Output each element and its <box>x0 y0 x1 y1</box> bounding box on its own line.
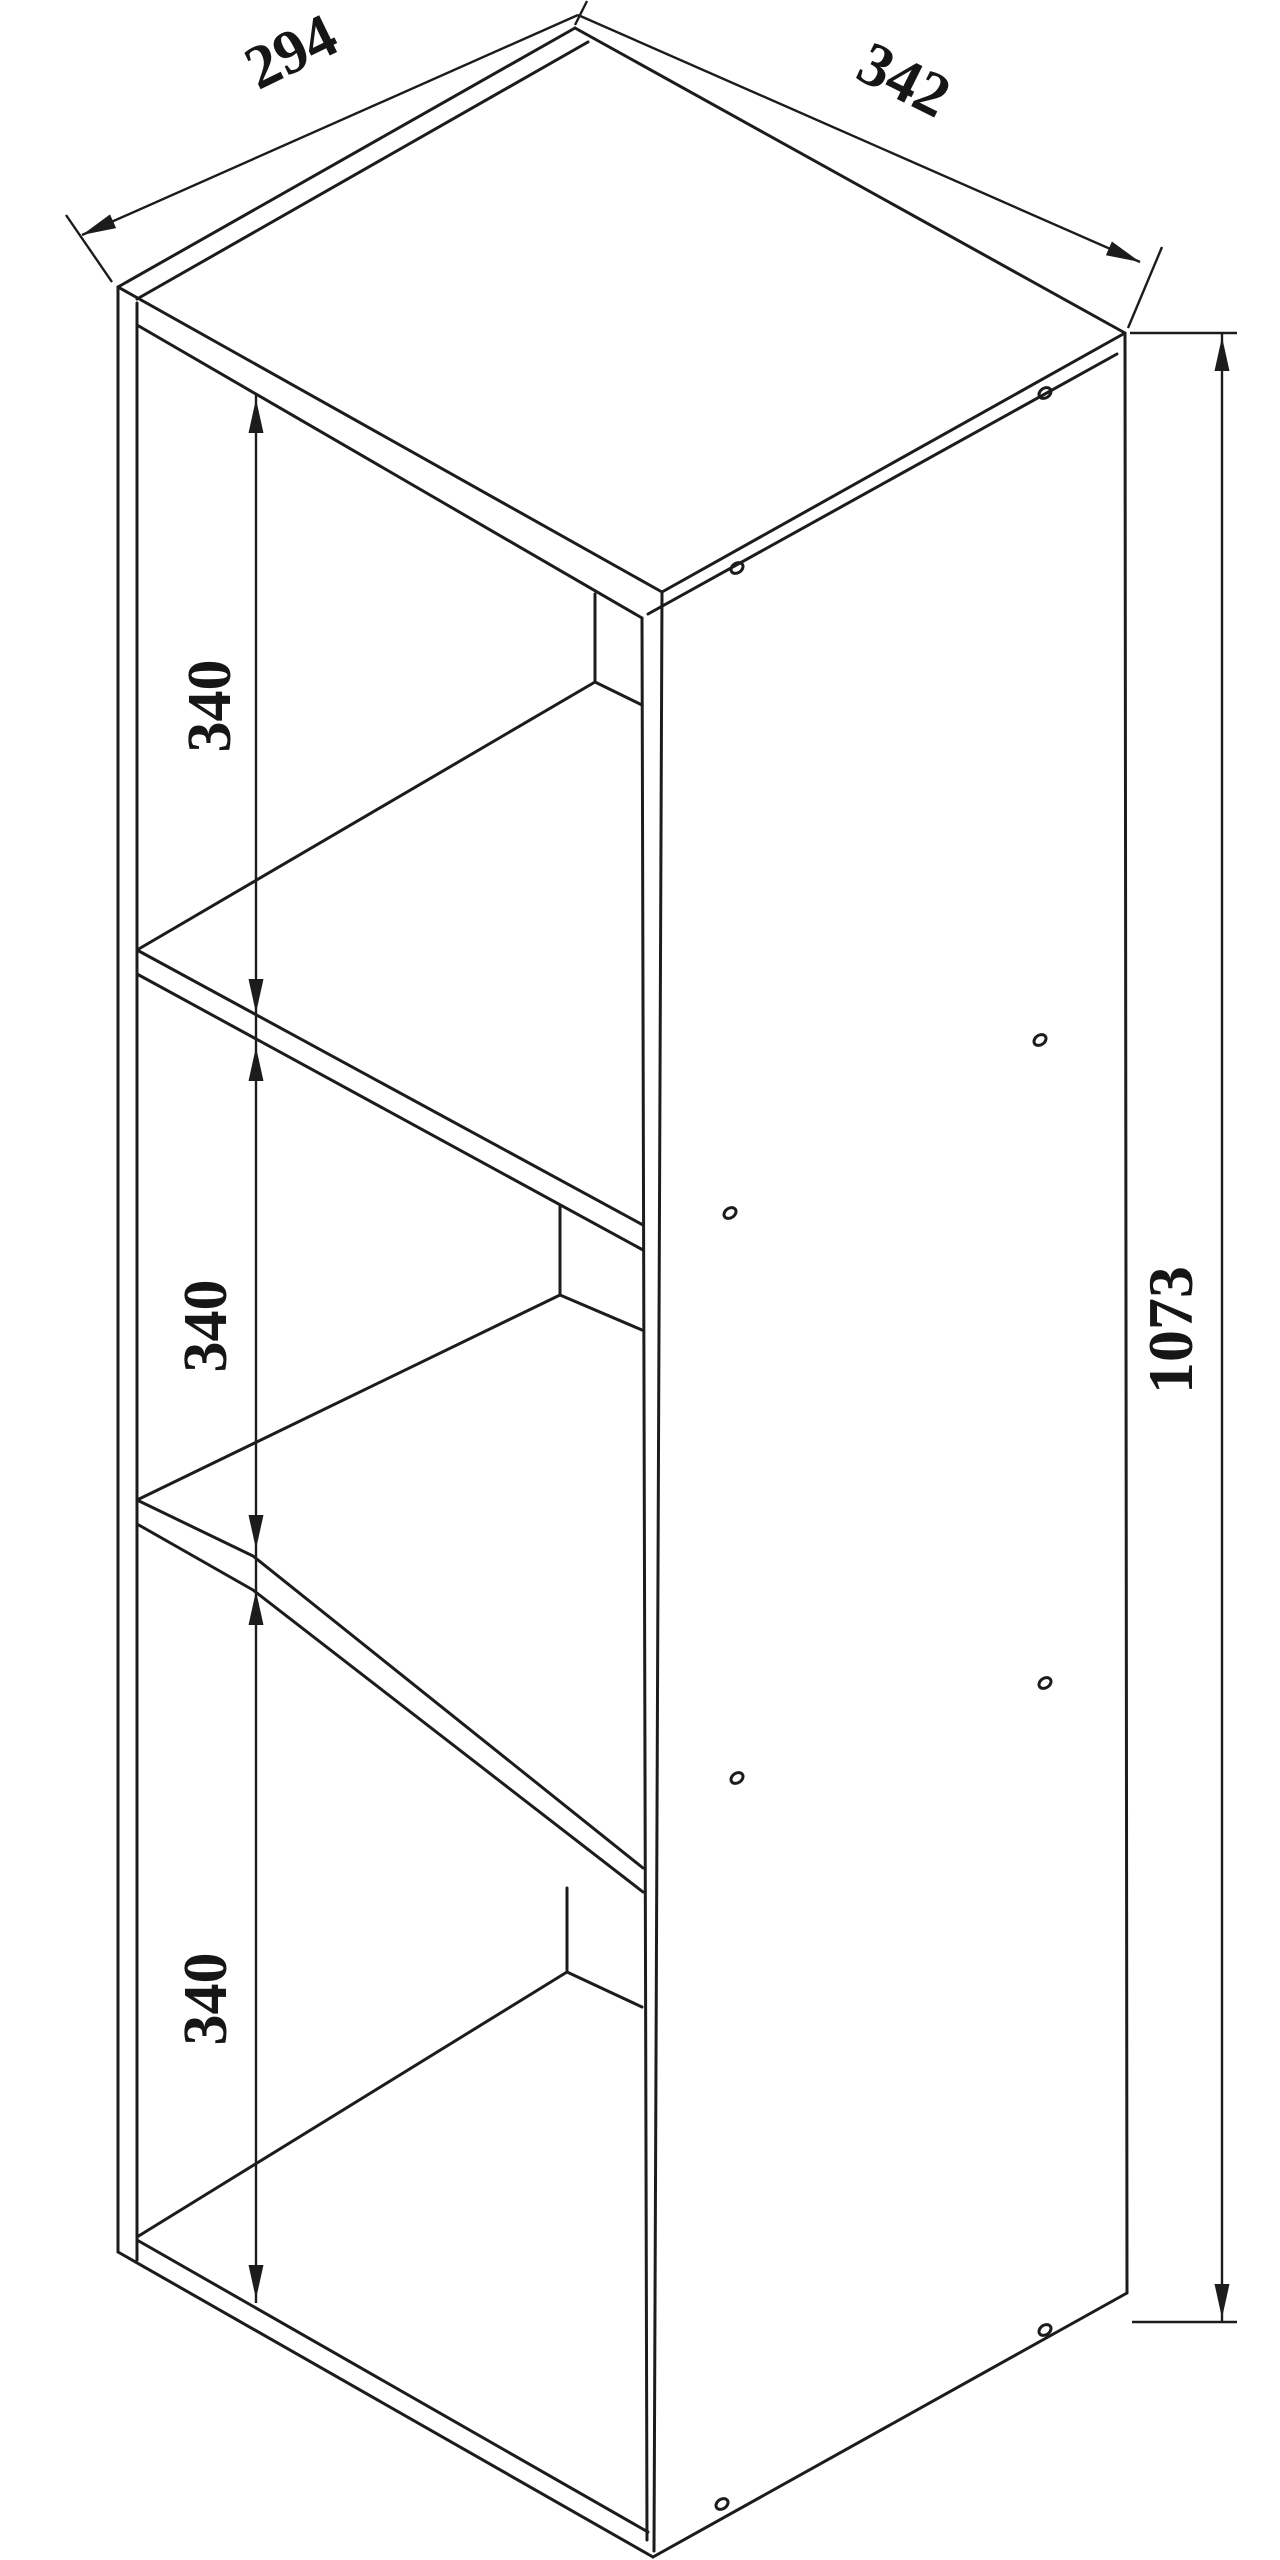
dimension-arrowhead <box>1215 337 1230 371</box>
dimension-arrowhead <box>249 979 264 1013</box>
dim-label-top-width: 342 <box>847 29 961 131</box>
dimension-arrowhead <box>249 1515 264 1549</box>
cabinet-line <box>648 354 1117 614</box>
dim-label-compartment-3: 340 <box>172 1953 240 2046</box>
shelf-edge-line <box>137 1524 643 1892</box>
cabinet-outline-lines <box>118 28 1127 2557</box>
cabinet-line <box>642 618 647 2540</box>
cabinet-line <box>118 2252 653 2557</box>
screw-hole-back <box>1037 1675 1053 1690</box>
compartment-line <box>567 1972 642 2007</box>
dimension-arrowhead <box>249 2265 264 2299</box>
dim-label-compartment-1: 340 <box>176 660 244 753</box>
cabinet-line <box>118 28 575 287</box>
dimension-line <box>578 15 1140 262</box>
dim-label-compartment-2: 340 <box>172 1280 240 1373</box>
cabinet-line <box>137 325 642 618</box>
cabinet-line <box>1125 333 1127 2293</box>
screw-hole-back <box>1032 1032 1048 1047</box>
cabinet-line <box>137 42 588 299</box>
dim-label-top-depth: 294 <box>235 1 348 103</box>
shelf-edge-line <box>137 950 643 1225</box>
dimension-arrowhead <box>1106 242 1140 263</box>
shelf-dimension-diagram: 294 342 1073 340 340 340 <box>0 0 1280 2560</box>
screw-holes <box>714 385 1053 2511</box>
cabinet-line <box>653 2293 1127 2557</box>
dim-label-height: 1073 <box>1135 1266 1206 1394</box>
dimension-arrowhead <box>1215 2284 1230 2318</box>
screw-hole-front <box>729 560 745 575</box>
shelf-edge-line <box>137 974 643 1250</box>
cabinet-line <box>654 592 662 2551</box>
screw-hole-front <box>729 1770 745 1785</box>
cabinet-line <box>662 333 1125 592</box>
shelf-edge-line <box>137 1500 643 1868</box>
cabinet-line <box>118 287 662 592</box>
screw-hole-front <box>714 2496 730 2511</box>
cabinet-line <box>137 2240 648 2532</box>
screw-hole-front <box>722 1205 738 1220</box>
dimension-arrowhead <box>249 399 264 433</box>
technical-drawing-canvas: 294 342 1073 340 340 340 <box>0 0 1280 2560</box>
dimension-arrowhead <box>82 214 116 235</box>
shelf-edge-lines <box>137 950 643 1892</box>
dimension-arrowhead <box>249 1047 264 1081</box>
compartment-line <box>595 682 642 705</box>
dimension-lines <box>66 1 1237 2322</box>
compartment-line <box>560 1295 642 1330</box>
cabinet-line <box>575 28 1125 333</box>
dimension-line <box>575 1 587 25</box>
